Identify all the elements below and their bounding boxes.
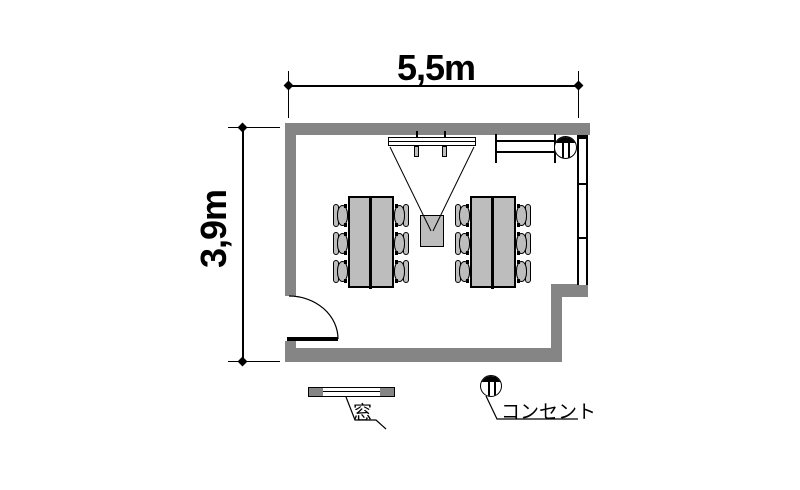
- chair: [333, 259, 348, 284]
- chair-armrest: [517, 223, 520, 227]
- chair-armrest: [466, 232, 469, 236]
- chair-armrest: [517, 279, 520, 283]
- chair-armrest: [344, 251, 347, 255]
- chair: [516, 259, 531, 284]
- chair-armrest: [395, 251, 398, 255]
- chair-armrest: [517, 251, 520, 255]
- chair: [333, 203, 348, 228]
- chair-armrest: [395, 279, 398, 283]
- width-extension-line-right: [578, 71, 579, 118]
- shelf-edge-line: [497, 151, 554, 153]
- chair-armrest: [517, 204, 520, 208]
- height-extension-line-top: [228, 127, 280, 128]
- outlet-hatch-line: [562, 137, 564, 158]
- wall-right-step-horizontal: [551, 284, 588, 297]
- legend-outlet-symbol: [480, 375, 502, 397]
- door-swing-arc: [289, 296, 338, 339]
- chair: [516, 231, 531, 256]
- chair-armrest: [344, 260, 347, 264]
- chair-armrest: [395, 223, 398, 227]
- height-dimension-label: 3,9m: [193, 190, 235, 268]
- chair-armrest: [466, 260, 469, 264]
- table-group-2: [470, 196, 516, 288]
- outlet-symbol: [554, 136, 577, 159]
- window-divider: [577, 183, 588, 185]
- chair: [516, 203, 531, 228]
- outlet-hatch-line: [494, 376, 496, 396]
- legend-window-end-block: [309, 388, 323, 396]
- width-dimension-line: [288, 85, 578, 87]
- door-leaf: [287, 337, 338, 341]
- width-extension-line-left: [288, 71, 289, 118]
- dimension-tick: [238, 123, 248, 133]
- chair-armrest: [395, 232, 398, 236]
- window-divider: [577, 237, 588, 239]
- screen-bracket: [414, 146, 419, 157]
- height-extension-line-bottom: [228, 361, 280, 362]
- chair: [455, 203, 470, 228]
- shelf-end-bar: [495, 134, 497, 163]
- outlet-cap: [480, 375, 502, 382]
- chair: [333, 231, 348, 256]
- table-divider: [369, 197, 372, 289]
- chair-armrest: [344, 232, 347, 236]
- floor-plan: 5,5m 3,9m: [0, 0, 800, 490]
- chair-armrest: [466, 204, 469, 208]
- chair-armrest: [466, 279, 469, 283]
- chair: [394, 231, 409, 256]
- legend-window-inner-line: [323, 391, 380, 392]
- chair: [394, 203, 409, 228]
- wall-top: [285, 123, 590, 135]
- dimension-tick: [574, 81, 584, 91]
- chair-armrest: [395, 204, 398, 208]
- outlet-cap: [554, 136, 577, 143]
- projector-screen: [388, 137, 476, 146]
- chair-armrest: [466, 251, 469, 255]
- chair: [455, 231, 470, 256]
- dimension-tick: [238, 357, 248, 367]
- screen-inner-line: [389, 141, 475, 142]
- window-right: [577, 139, 588, 285]
- screen-bracket: [442, 146, 447, 157]
- table-divider: [491, 197, 494, 289]
- chair: [394, 259, 409, 284]
- chair-armrest: [466, 223, 469, 227]
- chair-armrest: [517, 232, 520, 236]
- chair-armrest: [344, 279, 347, 283]
- width-dimension-label: 5,5m: [397, 47, 475, 89]
- legend-window-label: 窓: [353, 398, 372, 425]
- table-group-1: [348, 196, 394, 288]
- projector: [420, 215, 444, 247]
- shelf-edge-line: [497, 140, 554, 142]
- legend-window-symbol: [308, 387, 395, 397]
- legend-outlet-label: コンセント: [501, 397, 596, 424]
- wall-left: [285, 123, 296, 296]
- outlet-hatch-line: [568, 137, 570, 158]
- height-dimension-line: [242, 127, 244, 361]
- legend-window-end-block: [380, 388, 394, 396]
- wall-bottom: [285, 348, 562, 362]
- chair-armrest: [517, 260, 520, 264]
- dimension-tick: [284, 81, 294, 91]
- outlet-hatch-line: [488, 376, 490, 396]
- chair: [455, 259, 470, 284]
- chair-armrest: [395, 260, 398, 264]
- chair-armrest: [344, 223, 347, 227]
- chair-armrest: [344, 204, 347, 208]
